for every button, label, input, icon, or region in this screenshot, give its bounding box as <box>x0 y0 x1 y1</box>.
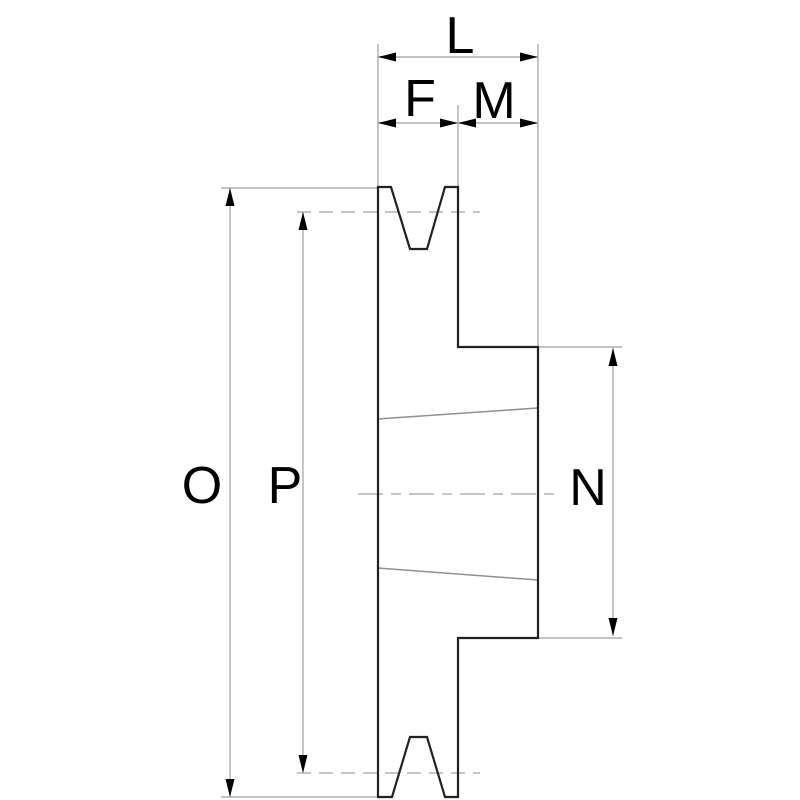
arrowhead-L-left <box>378 53 396 62</box>
pulley-cross-section-drawing: L F M O P N <box>0 0 800 800</box>
arrowhead-N-top <box>609 348 618 366</box>
dashed-lines-group <box>297 212 560 773</box>
thin-lines-group <box>221 44 622 797</box>
dimension-label-O: O <box>182 457 222 515</box>
arrowhead-F-left <box>378 119 396 128</box>
arrowhead-P-top <box>299 212 308 230</box>
pulley-outline <box>378 187 538 797</box>
dimension-labels-group: L F M O P N <box>182 7 607 517</box>
arrowhead-F-right <box>440 119 458 128</box>
arrowhead-P-bottom <box>299 755 308 773</box>
arrowhead-N-bottom <box>609 618 618 636</box>
dimension-label-N: N <box>569 459 607 517</box>
arrowheads-group <box>226 53 618 798</box>
arrowhead-L-right <box>520 53 538 62</box>
dimension-label-L: L <box>446 7 475 65</box>
dimension-label-P: P <box>268 457 303 515</box>
taper-bore-line-top <box>378 408 538 419</box>
taper-bore-line-bottom <box>378 568 538 580</box>
pulley-outline-group <box>378 187 538 797</box>
arrowhead-O-bottom <box>226 779 235 797</box>
dimension-label-M: M <box>472 72 515 130</box>
pulley-drawing-canvas: L F M O P N <box>0 0 800 800</box>
arrowhead-O-top <box>226 188 235 206</box>
arrowhead-M-right <box>520 119 538 128</box>
dimension-label-F: F <box>404 70 436 128</box>
